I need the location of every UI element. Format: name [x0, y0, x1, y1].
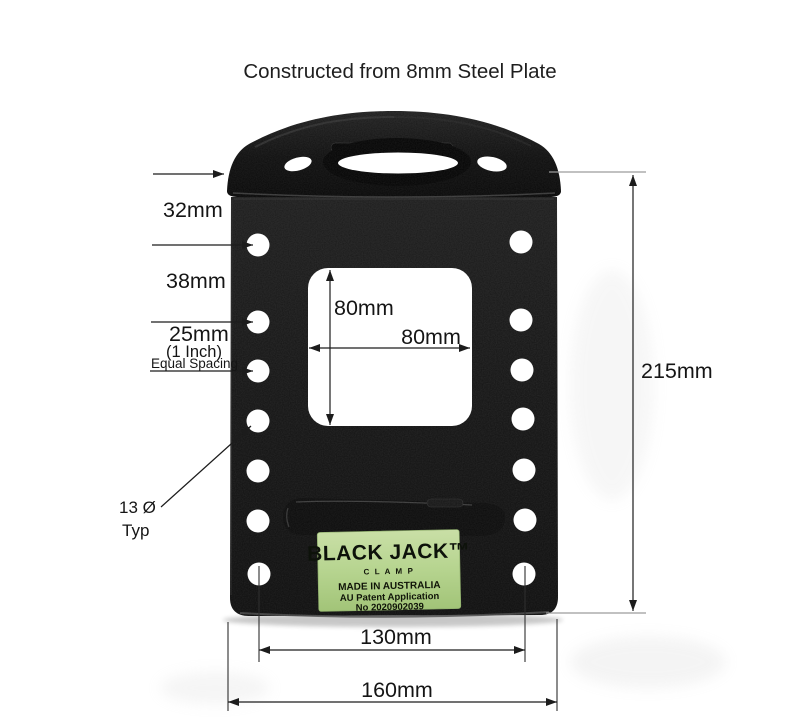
- clamp-bracket-photo: BLACK JACK™ C L A M P MADE IN AUSTRALIA …: [227, 111, 561, 617]
- shadow-smudge: [570, 636, 726, 688]
- shadow-smudge: [570, 270, 654, 500]
- dim-hole-span-label: 130mm: [360, 625, 432, 649]
- dim-cutout-width-label: 80mm: [401, 325, 461, 349]
- dim-hole-diameter-typ-label: Typ: [122, 521, 149, 540]
- patent-number-text: No 2020902039: [356, 601, 424, 613]
- dim-hole-diameter-label: 13 Ø: [119, 498, 156, 517]
- dim-spacing-note-label: Equal Spacing: [151, 356, 238, 371]
- diagram-title: Constructed from 8mm Steel Plate: [243, 60, 556, 83]
- diagram-canvas: BLACK JACK™ C L A M P MADE IN AUSTRALIA …: [0, 0, 800, 720]
- dim-height-label: 215mm: [641, 359, 713, 383]
- dim-width-label: 160mm: [361, 678, 433, 702]
- dim-first-gap-label: 38mm: [166, 269, 226, 293]
- brand-subtext: C L A M P: [363, 566, 414, 576]
- dim-cutout-height-label: 80mm: [334, 296, 394, 320]
- brand-label: BLACK JACK™ C L A M P MADE IN AUSTRALIA …: [307, 529, 472, 614]
- shadow-smudge: [160, 672, 270, 704]
- dim-top-offset-label: 32mm: [163, 198, 223, 222]
- brand-text: BLACK JACK™: [307, 539, 470, 565]
- product-dimension-diagram: BLACK JACK™ C L A M P MADE IN AUSTRALIA …: [0, 0, 800, 720]
